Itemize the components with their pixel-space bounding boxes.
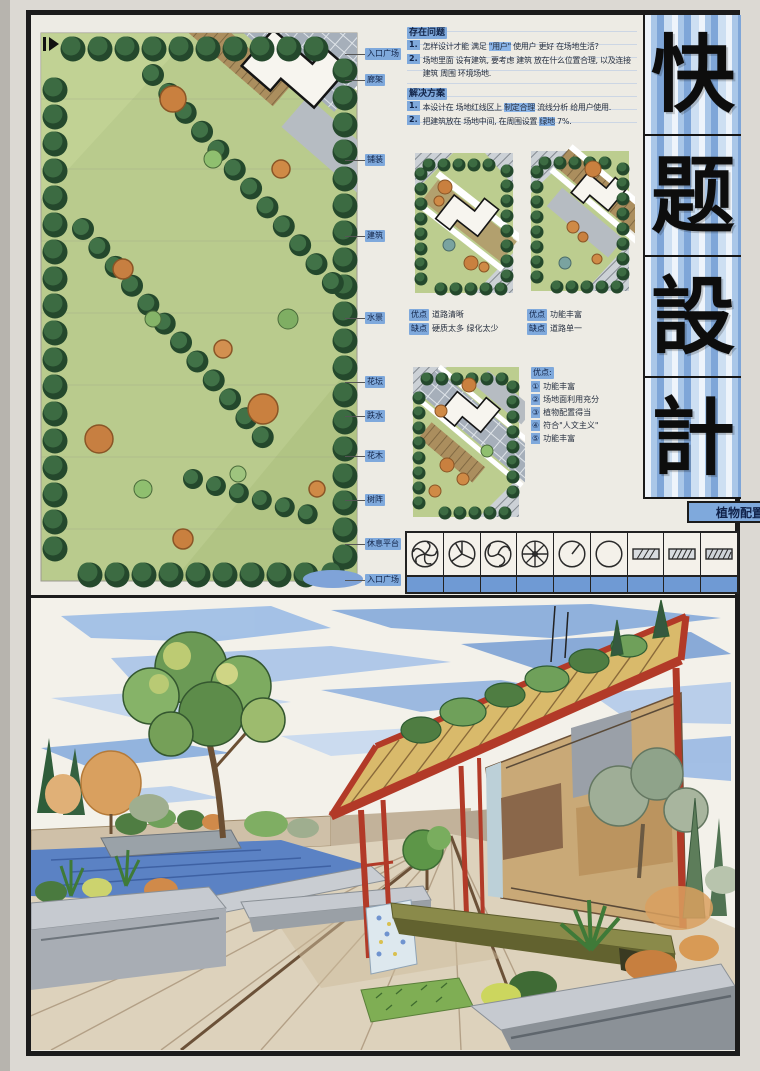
- plant-symbol-plain-circle: [591, 533, 628, 575]
- plant-symbol-clock-circle: [554, 533, 591, 575]
- plant-symbol-segment-circle: [444, 533, 481, 575]
- perspective-rendering: [31, 598, 735, 1050]
- water-feature: [303, 570, 363, 588]
- analysis-column: 存在问题 1. 怎样设计才能 满足 "用户" 使用户 更好 在场地生活? 2. …: [407, 15, 639, 595]
- plan-label-building: 建筑: [365, 223, 385, 242]
- plan-label-entry-plaza2: 入口广场: [365, 567, 401, 586]
- photo-scan-edge: [0, 0, 10, 1071]
- plant-symbol-hedge-3: [701, 533, 737, 575]
- vertical-title: 快 题 設 計: [643, 15, 741, 499]
- plant-table-title: 植物配置表: [687, 501, 760, 523]
- plan-label-strip: 入口广场 廊架 铺装 建筑 水景 花坛 跌水 花木 树阵 休息平台 入口广场: [361, 15, 407, 595]
- title-char-ji: 計: [645, 378, 741, 499]
- perspective-drawing: [31, 598, 735, 1050]
- title-char-she: 設: [645, 257, 741, 378]
- plan-label-entry-plaza: 入口广场: [365, 41, 401, 60]
- diagram-1-notes: 优点道路清晰 缺点硬质太多 绿化太少: [409, 307, 521, 337]
- site-plan-drawing: [33, 19, 367, 595]
- title-char-ti: 题: [645, 136, 741, 257]
- plant-name-strip: [405, 577, 739, 594]
- plant-symbol-spoke-circle: [517, 533, 554, 575]
- problem-item: 2. 场地里面 设有建筑, 要考虑 建筑 放在什么位置合理, 以及连接建筑 周围…: [407, 54, 637, 80]
- master-site-plan: [33, 19, 367, 595]
- analysis-diagram-1: [409, 145, 519, 301]
- solutions-header: 解决方案: [407, 81, 637, 100]
- diagram-3-notes: 优点: ①功能丰富 ②场地面利用充分 ③植物配置得当 ④符合"人文主义" ⑤功能…: [531, 365, 639, 446]
- title-char-kuai: 快: [645, 15, 741, 136]
- problems-header: 存在问题: [407, 20, 637, 39]
- solution-item: 1. 本设计在 场地红线区上 制定合理 流线分析 给用户使用.: [407, 101, 637, 114]
- analysis-diagram-3: [407, 359, 525, 525]
- plan-label-water: 水景: [365, 305, 385, 324]
- solution-item: 2. 把建筑放在 场地中间, 在周围设置 绿地 7%.: [407, 115, 637, 128]
- plan-label-rest-deck: 休息平台: [365, 531, 401, 550]
- plan-label-tree-array: 树阵: [365, 487, 385, 506]
- plant-symbol-swirl-circle: [481, 533, 518, 575]
- plan-label-flower-trees: 花木: [365, 443, 385, 462]
- analysis-diagram-2: [525, 143, 635, 299]
- presentation-board: 入口广场 廊架 铺装 建筑 水景 花坛 跌水 花木 树阵 休息平台 入口广场 存…: [26, 10, 740, 1056]
- plant-configuration-table: 植物配置表: [405, 531, 739, 593]
- plant-symbol-hedge-1: [628, 533, 665, 575]
- problem-item: 1. 怎样设计才能 满足 "用户" 使用户 更好 在场地生活?: [407, 40, 637, 53]
- plan-label-paving: 铺装: [365, 147, 385, 166]
- plan-label-flowerbed: 花坛: [365, 369, 385, 388]
- plant-symbol-fan-circle: [407, 533, 444, 575]
- diagram-2-notes: 优点功能丰富 缺点道路单一: [527, 307, 639, 337]
- plan-label-cascade: 跌水: [365, 403, 385, 422]
- problem-solution-notes: 存在问题 1. 怎样设计才能 满足 "用户" 使用户 更好 在场地生活? 2. …: [407, 19, 637, 129]
- plant-symbol-hedge-2: [664, 533, 701, 575]
- plan-label-pergola: 廊架: [365, 67, 385, 86]
